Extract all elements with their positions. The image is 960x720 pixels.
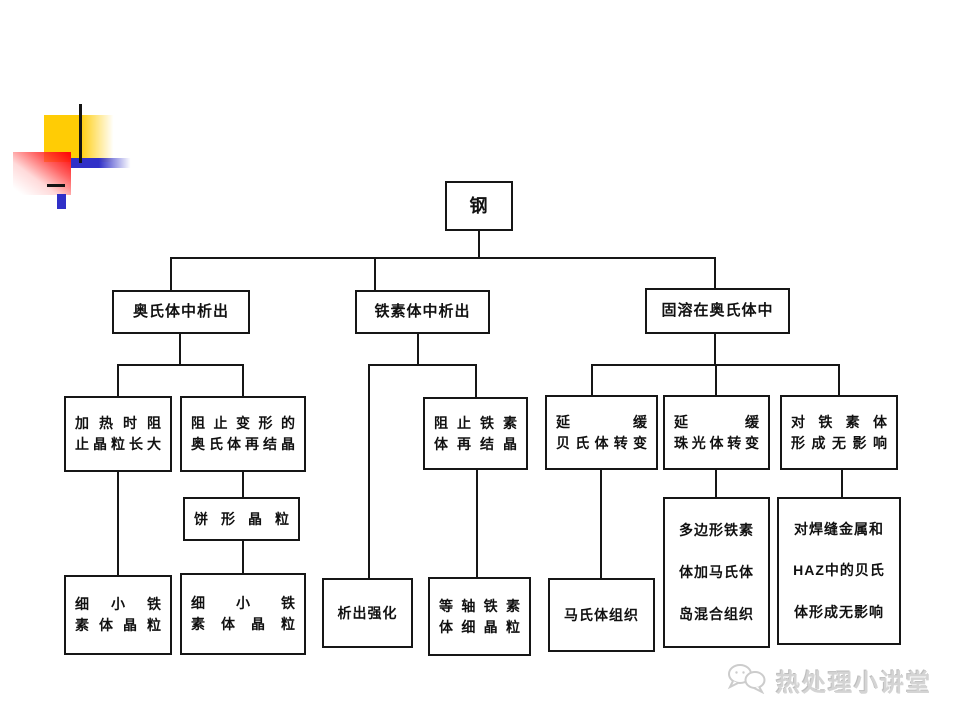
watermark-text: 热处理小讲堂	[776, 663, 932, 698]
connector-line	[117, 364, 244, 366]
connector-line	[591, 364, 593, 395]
node-no-effect-on-ferrite-formation: 对铁素体 形成无影响	[780, 395, 898, 470]
node-steel: 钢	[445, 181, 513, 231]
node-solid-solution-in-austenite: 固溶在奥氏体中	[645, 288, 790, 334]
node-label: 钢	[456, 193, 502, 220]
node-label: 奥氏体再结晶	[191, 434, 295, 455]
decoration-red-rect	[13, 152, 71, 195]
wechat-icon	[726, 662, 768, 699]
decoration-black-vertical-line	[79, 104, 82, 163]
connector-line	[715, 364, 717, 395]
connector-line	[714, 257, 716, 288]
node-martensite-structure: 马氏体组织	[548, 578, 655, 652]
node-delay-bainite-transformation: 延缓 贝氏体转变	[545, 395, 658, 470]
node-label: 马氏体组织	[559, 605, 644, 626]
connector-line	[368, 364, 477, 366]
node-label: HAZ中的贝氏	[788, 560, 890, 581]
node-label: 延缓	[556, 412, 647, 433]
node-fine-ferrite-grains-1: 细小铁 素体晶粒	[64, 575, 172, 655]
watermark: 热处理小讲堂	[726, 662, 932, 699]
node-polygonal-ferrite-martensite-island-mix: 多边形铁素 体加马氏体 岛混合组织	[663, 497, 770, 648]
node-label: 析出强化	[333, 603, 402, 624]
node-label: 岛混合组织	[674, 604, 759, 625]
node-precipitation-strengthening: 析出强化	[322, 578, 413, 648]
connector-line	[478, 231, 480, 258]
connector-line	[476, 470, 478, 577]
node-label: 细小铁	[191, 593, 295, 614]
node-pancake-grains: 饼形晶粒	[183, 497, 300, 541]
node-label: 铁素体中析出	[366, 301, 479, 324]
connector-line	[117, 472, 119, 575]
node-label: 体细晶粒	[439, 617, 520, 638]
connector-line	[368, 364, 370, 578]
slide: 钢 奥氏体中析出 铁素体中析出 固溶在奥氏体中 加热时阻 止晶粒长大 阻止变形的…	[0, 0, 960, 720]
connector-line	[242, 364, 244, 396]
node-label: 多边形铁素	[674, 520, 759, 541]
node-delay-pearlite-transformation: 延缓 珠光体转变	[663, 395, 770, 470]
node-precipitated-in-ferrite: 铁素体中析出	[355, 290, 490, 334]
connector-line	[475, 364, 477, 397]
decoration-blue-square	[57, 194, 66, 209]
node-label: 对焊缝金属和	[788, 519, 890, 540]
node-label: 素体晶粒	[75, 615, 161, 636]
node-precipitated-in-austenite: 奥氏体中析出	[112, 290, 250, 334]
node-label: 体加马氏体	[674, 562, 759, 583]
node-label: 珠光体转变	[674, 433, 759, 454]
node-label: 贝氏体转变	[556, 433, 647, 454]
node-fine-ferrite-grains-2: 细小铁 素体晶粒	[180, 573, 306, 655]
node-prevent-deformed-austenite-recrystallization: 阻止变形的 奥氏体再结晶	[180, 396, 306, 472]
connector-line	[170, 257, 716, 259]
node-label: 奥氏体中析出	[123, 301, 239, 324]
node-label: 细小铁	[75, 594, 161, 615]
node-label: 体再结晶	[434, 434, 517, 455]
connector-line	[179, 334, 181, 365]
connector-line	[242, 472, 244, 497]
connector-line	[714, 334, 716, 365]
node-label: 体形成无影响	[788, 602, 890, 623]
connector-line	[242, 541, 244, 573]
node-label: 素体晶粒	[191, 614, 295, 635]
connector-line	[117, 364, 119, 396]
connector-line	[841, 470, 843, 497]
decoration-black-horizontal-line	[47, 184, 65, 187]
node-label: 等轴铁素	[439, 596, 520, 617]
node-label: 固溶在奥氏体中	[656, 300, 779, 323]
node-prevent-grain-growth-on-heating: 加热时阻 止晶粒长大	[64, 396, 172, 472]
connector-line	[715, 470, 717, 497]
connector-line	[374, 257, 376, 291]
node-prevent-ferrite-recrystallization: 阻止铁素 体再结晶	[423, 397, 528, 470]
connector-line	[600, 470, 602, 578]
node-label: 加热时阻	[75, 413, 161, 434]
node-label: 延缓	[674, 412, 759, 433]
node-label: 饼形晶粒	[194, 509, 289, 530]
connector-line	[838, 364, 840, 395]
node-label: 止晶粒长大	[75, 434, 161, 455]
node-equiaxed-fine-ferrite-grains: 等轴铁素 体细晶粒	[428, 577, 531, 656]
node-label: 阻止铁素	[434, 413, 517, 434]
node-no-effect-on-weld-haz-bainite: 对焊缝金属和 HAZ中的贝氏 体形成无影响	[777, 497, 901, 645]
connector-line	[170, 257, 172, 290]
connector-line	[417, 334, 419, 365]
node-label: 阻止变形的	[191, 413, 295, 434]
node-label: 对铁素体	[791, 412, 887, 433]
node-label: 形成无影响	[791, 433, 887, 454]
